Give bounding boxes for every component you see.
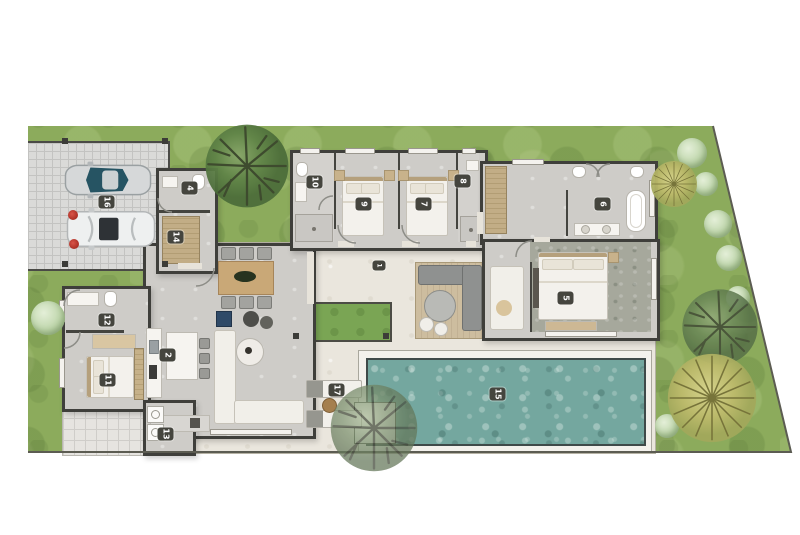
tv-console	[533, 268, 539, 308]
bed-bench	[545, 321, 597, 331]
toilet	[296, 162, 308, 177]
room-label-hall: 1	[373, 261, 386, 271]
fence-post	[162, 138, 168, 144]
wardrobe	[134, 348, 144, 400]
door-opening	[307, 252, 314, 304]
flower-pot	[69, 239, 79, 249]
shrub	[716, 245, 742, 271]
shower	[295, 214, 333, 242]
window	[408, 148, 438, 154]
room-label-bathroom-1: 10	[307, 176, 323, 189]
bathroom-sink	[295, 182, 307, 202]
room-label-bedroom-1: 9	[356, 198, 372, 211]
pouf	[260, 316, 273, 329]
door-opening	[402, 241, 418, 247]
fence-post	[62, 261, 68, 267]
sofa-chaise	[234, 400, 304, 424]
bar-stool	[199, 368, 210, 379]
interior-wall	[334, 153, 336, 229]
outdoor-pouf	[419, 317, 434, 332]
courtyard-post	[383, 333, 389, 339]
window	[651, 258, 657, 300]
interior-wall	[398, 153, 400, 229]
closet-wardrobe	[485, 166, 507, 234]
dining-chair	[239, 296, 254, 309]
door-opening	[338, 241, 354, 247]
interior-wall	[456, 153, 458, 229]
master-bed	[538, 252, 608, 320]
outdoor-pouf	[434, 322, 448, 336]
door-opening	[477, 212, 483, 234]
door-opening	[466, 241, 476, 247]
nightstand	[384, 170, 395, 181]
room-label-bedroom-2: 7	[416, 198, 432, 211]
bathtub	[626, 190, 646, 232]
oven	[190, 418, 200, 428]
floor-plan: 1 2 4 5 6 7 8 9 10 11 12 13 14 15 16 17	[0, 0, 800, 535]
washer	[147, 406, 164, 423]
bidet	[630, 166, 644, 178]
fence-post	[62, 138, 68, 144]
room-label-garage: 16	[99, 196, 115, 209]
toilet	[572, 166, 586, 178]
room-label-kitchen: 2	[160, 349, 176, 362]
interior-wall	[66, 330, 124, 333]
window	[300, 148, 320, 154]
kitchen-counter	[146, 328, 162, 398]
tree	[203, 122, 291, 210]
dining-chair	[257, 296, 272, 309]
fence-post	[162, 261, 168, 267]
window	[512, 159, 544, 165]
bathroom-vanity	[67, 292, 99, 306]
shrub	[704, 210, 732, 238]
sink-basin	[602, 225, 611, 234]
table-centerpiece	[234, 271, 256, 282]
door-opening	[178, 263, 202, 269]
flower-pot	[68, 210, 78, 220]
rug-accent	[496, 300, 512, 316]
table-decor	[245, 347, 252, 354]
nightstand	[334, 170, 345, 181]
interior-wall	[530, 262, 532, 332]
room-label-pool: 15	[490, 388, 506, 401]
palm-tree	[649, 159, 699, 209]
window	[462, 148, 476, 154]
kitchen-sink	[149, 340, 159, 354]
pouf	[243, 311, 259, 327]
sink-basin	[581, 225, 590, 234]
car-coupe	[64, 160, 152, 200]
shrub	[31, 301, 65, 335]
nightstand	[608, 252, 619, 263]
door-opening	[534, 237, 550, 242]
bar-stool	[199, 338, 210, 349]
courtyard-post	[293, 333, 299, 339]
window	[545, 331, 617, 337]
interior-wall	[566, 190, 568, 236]
side-patio	[62, 406, 145, 456]
dining-chair	[239, 247, 254, 260]
interior-wall	[158, 210, 210, 213]
dining-chair	[221, 296, 236, 309]
nightstand	[398, 170, 409, 181]
wc-sink	[162, 176, 178, 188]
room-label-sun-loungers: 17	[329, 384, 345, 397]
bathroom-sink	[466, 160, 479, 171]
car-suv	[66, 207, 156, 251]
chaise-lounge	[490, 266, 524, 330]
room-label-laundry: 13	[158, 428, 174, 441]
window	[345, 148, 375, 154]
sofa	[214, 330, 236, 424]
cooktop	[149, 365, 157, 379]
palm-tree	[664, 350, 760, 446]
window	[59, 358, 65, 388]
room-label-master-bedroom: 5	[558, 292, 574, 305]
dresser	[92, 334, 136, 349]
room-label-guest-bathroom: 12	[99, 314, 115, 327]
blue-ottoman	[216, 311, 232, 327]
room-label-wc: 4	[182, 182, 198, 195]
bar-stool	[199, 353, 210, 364]
room-label-bathroom-2: 8	[455, 175, 471, 188]
dining-chair	[221, 247, 236, 260]
outdoor-sofa	[462, 265, 482, 331]
room-label-guest-bedroom: 11	[100, 374, 116, 387]
dining-chair	[257, 247, 272, 260]
window	[210, 429, 292, 435]
room-label-master-bathroom: 6	[595, 198, 611, 211]
room-label-entry-hall: 14	[168, 231, 184, 244]
toilet	[104, 291, 117, 307]
